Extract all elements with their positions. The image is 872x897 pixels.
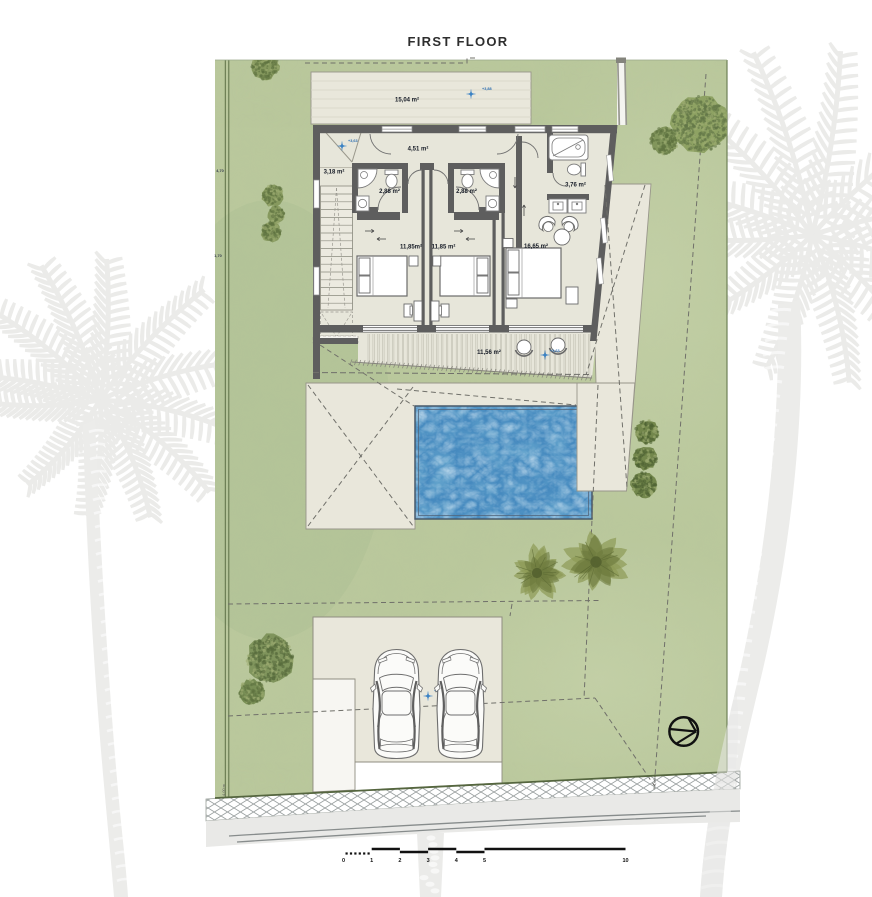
svg-text:5: 5 bbox=[483, 858, 486, 864]
svg-text:+3,88: +3,88 bbox=[482, 87, 492, 91]
svg-text:4,51 m²: 4,51 m² bbox=[408, 146, 429, 153]
svg-text:11,56 m²: 11,56 m² bbox=[477, 349, 501, 356]
svg-text:11,85 m²: 11,85 m² bbox=[432, 244, 456, 251]
svg-text:10: 10 bbox=[622, 858, 628, 864]
svg-text:2,88 m²: 2,88 m² bbox=[379, 188, 400, 195]
svg-text:4,70: 4,70 bbox=[216, 169, 223, 173]
svg-text:+3,63: +3,63 bbox=[550, 349, 560, 353]
svg-text:3,76 m²: 3,76 m² bbox=[565, 182, 586, 189]
svg-text:11,85m²: 11,85m² bbox=[400, 244, 422, 251]
svg-text:0: 0 bbox=[342, 858, 345, 864]
svg-text:+3,63: +3,63 bbox=[348, 139, 358, 143]
svg-text:FIRST FLOOR: FIRST FLOOR bbox=[408, 34, 509, 49]
svg-text:4,00 m: 4,00 m bbox=[222, 784, 226, 796]
svg-text:2: 2 bbox=[398, 858, 401, 864]
svg-text:1: 1 bbox=[370, 858, 373, 864]
svg-text:15,04 m²: 15,04 m² bbox=[395, 97, 419, 104]
svg-text:1,70: 1,70 bbox=[214, 254, 221, 258]
svg-text:3,18 m²: 3,18 m² bbox=[324, 169, 345, 176]
svg-text:16,65 m²: 16,65 m² bbox=[524, 243, 548, 250]
svg-text:2,88 m²: 2,88 m² bbox=[456, 188, 477, 195]
svg-text:3: 3 bbox=[427, 858, 430, 864]
